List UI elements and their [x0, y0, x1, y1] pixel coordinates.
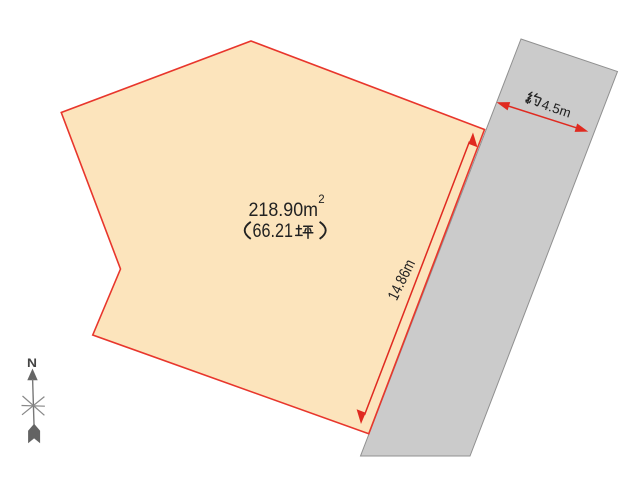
svg-text:N: N [27, 356, 37, 370]
svg-text:66.21: 66.21 [253, 220, 294, 242]
svg-text:218.90m: 218.90m [249, 199, 319, 221]
svg-text:2: 2 [318, 194, 324, 206]
